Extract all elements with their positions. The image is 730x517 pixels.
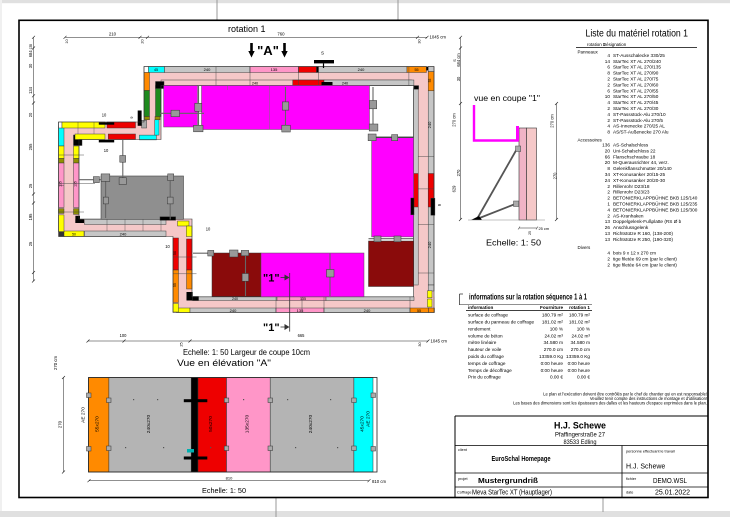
svg-text:Uni-Schalschloss 22: Uni-Schalschloss 22 [613,148,656,153]
svg-text:30: 30 [418,342,422,346]
svg-text:136: 136 [602,143,610,148]
svg-text:"A": "A" [257,43,279,58]
svg-text:BETONIERKLAPPBÜHNE BKB 125/235: BETONIERKLAPPBÜHNE BKB 125/235 [613,201,698,207]
svg-text:195: 195 [28,213,33,221]
svg-text:55x270: 55x270 [95,416,101,432]
svg-text:684 cm: 684 cm [28,43,33,57]
svg-text:tige filetée 64 cm (par le cli: tige filetée 64 cm (par le client) [613,263,677,268]
svg-text:45: 45 [154,68,158,72]
svg-text:AE 270: AE 270 [81,407,87,423]
svg-text:Prix du coffrage: Prix du coffrage [468,375,501,380]
svg-text:55: 55 [173,283,177,287]
svg-text:13: 13 [605,231,611,236]
svg-text:270 cm: 270 cm [550,114,555,128]
svg-text:Gelenkflanschmutter 20/140: Gelenkflanschmutter 20/140 [613,166,672,171]
svg-text:270 cm: 270 cm [53,356,58,371]
svg-text:StarTec XT AL 270/60: StarTec XT AL 270/60 [613,82,659,87]
svg-text:ST-Ausschalecke 330/25: ST-Ausschalecke 330/25 [613,53,665,58]
svg-text:55: 55 [417,309,421,313]
svg-text:date: date [626,491,633,495]
svg-text:25: 25 [528,231,532,235]
svg-text:AS-Innenecke 270/25 AL: AS-Innenecke 270/25 AL [613,124,665,129]
svg-text:2: 2 [607,196,610,201]
svg-text:240: 240 [120,232,127,237]
svg-text:240x270: 240x270 [146,414,152,433]
svg-text:2: 2 [607,77,610,82]
svg-text:rotation 1: rotation 1 [569,305,590,310]
svg-text:13: 13 [605,237,611,242]
svg-text:Liste du matériel rotation 1: Liste du matériel rotation 1 [586,29,689,40]
svg-text:2: 2 [607,257,610,262]
svg-text:AS/ST-Außenecke 270 Alu: AS/ST-Außenecke 270 Alu [613,130,669,135]
svg-text:StarTec XT AL 270/135: StarTec XT AL 270/135 [613,65,661,70]
svg-text:StarTec XT AL 270/240: StarTec XT AL 270/240 [613,59,661,64]
svg-text:25: 25 [180,342,184,346]
svg-text:24.02 m³: 24.02 m³ [545,333,564,338]
svg-text:Rillenrohr D23/18: Rillenrohr D23/18 [613,184,650,189]
svg-text:0.00 €: 0.00 € [577,375,590,380]
svg-text:25.01.2022: 25.01.2022 [655,490,690,497]
svg-text:Accessoires: Accessoires [578,138,603,143]
svg-text:Echelle: 1: 50: Echelle: 1: 50 [486,239,542,248]
svg-text:240: 240 [230,308,237,313]
svg-text:20: 20 [141,39,145,43]
svg-text:0:00 heure: 0:00 heure [541,361,564,366]
svg-text:100: 100 [120,333,128,338]
svg-text:"1": "1" [263,322,280,334]
svg-text:6: 6 [607,65,610,70]
svg-text:240x270: 240x270 [308,414,314,433]
svg-text:270.0 cm: 270.0 cm [544,347,563,352]
svg-text:25: 25 [28,241,33,246]
svg-text:10: 10 [165,244,170,249]
svg-text:34.580 m: 34.580 m [570,340,590,345]
svg-text:34: 34 [605,172,611,177]
svg-text:tige filetée 69 cm (par le cli: tige filetée 69 cm (par le client) [613,257,677,262]
svg-text:0:00 heure: 0:00 heure [541,368,564,373]
svg-text:66: 66 [605,154,611,159]
svg-text:270: 270 [58,420,63,428]
svg-text:50x270: 50x270 [208,416,214,432]
svg-text:S: S [452,59,457,62]
svg-text:mètre linéaire: mètre linéaire [468,340,497,345]
svg-text:135: 135 [73,181,77,187]
svg-text:240: 240 [204,67,211,72]
svg-text:134: 134 [28,86,33,94]
svg-text:ST-Passstück-Alu 270/5: ST-Passstück-Alu 270/5 [613,118,663,123]
svg-text:100 %: 100 % [577,326,590,331]
svg-text:Temps de décoffrage: Temps de décoffrage [468,368,512,373]
svg-text:10: 10 [206,227,211,232]
svg-text:Pfaffingerstraße 27: Pfaffingerstraße 27 [555,432,605,439]
svg-text:10: 10 [104,148,109,153]
svg-text:4: 4 [607,112,610,117]
svg-text:240: 240 [358,67,365,72]
svg-text:26: 26 [605,225,611,230]
svg-text:2: 2 [607,106,610,111]
svg-text:rendement: rendement [468,326,491,331]
svg-text:AS-Kranhaken: AS-Kranhaken [613,213,644,218]
svg-text:13: 13 [605,219,611,224]
svg-text:Anschlussgelenk: Anschlussgelenk [613,225,649,230]
svg-text:8: 8 [607,166,610,171]
svg-text:180.79 m²: 180.79 m² [569,313,591,318]
svg-text:24.02 m³: 24.02 m³ [572,333,591,338]
svg-text:181.02 m²: 181.02 m² [542,320,564,325]
svg-text:20: 20 [28,112,33,117]
svg-text:13359.0 Kg: 13359.0 Kg [566,354,590,359]
svg-text:240: 240 [252,82,258,86]
svg-text:2: 2 [607,184,610,189]
svg-text:EuroSchal Homepage: EuroSchal Homepage [492,456,551,463]
svg-text:1045 cm: 1045 cm [430,35,447,40]
svg-text:135x270: 135x270 [244,414,250,433]
svg-text:0:00 heure: 0:00 heure [568,368,591,373]
svg-text:2: 2 [607,190,610,195]
svg-text:vue en coupe "1": vue en coupe "1" [474,93,540,103]
svg-text:Divers: Divers [578,245,592,250]
svg-text:20: 20 [605,148,611,153]
svg-text:1: 1 [607,202,610,207]
svg-text:Les bases des dimensions sont: Les bases des dimensions sont les épaiss… [513,401,707,406]
svg-text:2: 2 [607,263,610,268]
svg-text:AS-Schalschloss: AS-Schalschloss [613,143,649,148]
svg-text:Echelle: 1: 50: Echelle: 1: 50 [202,486,246,495]
svg-text:StarTec XT AL 270/30: StarTec XT AL 270/30 [613,106,659,111]
svg-text:20: 20 [605,160,611,165]
svg-text:"1": "1" [263,273,280,285]
svg-text:information: information [468,305,493,310]
svg-text:informations sur la rotation: informations sur la rotation séquence 1 … [469,293,587,302]
svg-text:XT-Konusanker 20/15-25: XT-Konusanker 20/15-25 [613,172,666,177]
svg-text:0.00 €: 0.00 € [550,375,563,380]
svg-text:50: 50 [72,233,76,237]
svg-text:629: 629 [452,185,457,193]
svg-text:181.02 m²: 181.02 m² [569,320,591,325]
svg-text:255: 255 [28,143,33,151]
svg-text:45x270: 45x270 [360,416,366,432]
svg-text:2: 2 [607,118,610,123]
svg-text:H.J. Schewe: H.J. Schewe [554,421,606,432]
svg-text:8: 8 [607,130,610,135]
svg-text:25: 25 [28,183,33,188]
svg-text:4: 4 [607,53,610,58]
svg-text:Meva StarTec XT (Hauptlager): Meva StarTec XT (Hauptlager) [472,490,552,497]
svg-text:Richtstütze R 160, (138-200): Richtstütze R 160, (138-200) [613,231,673,236]
svg-text:projet: projet [458,477,468,481]
svg-text:hauteur de voile: hauteur de voile [468,347,502,352]
svg-text:100 %: 100 % [550,326,563,331]
svg-text:Mustergrundriß: Mustergrundriß [478,478,539,485]
svg-text:810: 810 [226,475,233,480]
svg-text:13359.0 Kg: 13359.0 Kg [539,354,563,359]
svg-text:135: 135 [297,308,304,313]
svg-text:2: 2 [607,213,610,218]
svg-text:0:00 heure: 0:00 heure [568,361,591,366]
svg-text:4: 4 [607,207,610,212]
svg-text:fichier: fichier [626,477,637,481]
svg-text:2: 2 [607,82,610,87]
svg-text:S: S [321,51,324,56]
svg-text:Echelle: 1: 50 Largeur de co: Echelle: 1: 50 Largeur de coupe 10cm [183,348,310,357]
svg-text:StarTec XT AL 270/45: StarTec XT AL 270/45 [613,100,659,105]
svg-text:810 cm: 810 cm [372,479,387,484]
svg-text:83533 Edling: 83533 Edling [564,439,597,446]
svg-text:55: 55 [414,68,418,72]
svg-text:Désignation: Désignation [603,42,627,47]
svg-text:Flanschschraube 18: Flanschschraube 18 [613,154,656,159]
svg-text:StarTec XT AL 270/50: StarTec XT AL 270/50 [613,94,659,99]
svg-text:H.J. Schewe: H.J. Schewe [626,464,665,471]
svg-text:8: 8 [607,71,610,76]
svg-text:270 cm: 270 cm [452,113,457,127]
svg-text:665: 665 [298,333,306,338]
svg-text:135: 135 [58,181,62,187]
svg-text:ST-Passstück-Alu 270/10: ST-Passstück-Alu 270/10 [613,112,666,117]
svg-text:XT-Konusanker 20/20-30: XT-Konusanker 20/20-30 [613,178,666,183]
svg-text:55: 55 [428,79,432,83]
svg-text:30: 30 [28,63,33,68]
svg-text:240: 240 [342,82,348,86]
svg-text:180.79 m²: 180.79 m² [542,313,564,318]
svg-text:Fourniture: Fourniture [540,305,563,310]
svg-text:14: 14 [605,59,611,64]
svg-text:bois 9 x 12 x 270 cm: bois 9 x 12 x 270 cm [613,251,656,256]
svg-text:temps de coffrage: temps de coffrage [468,361,506,366]
svg-text:240: 240 [427,241,432,248]
svg-text:Vue en élévation "A": Vue en élévation "A" [177,358,271,368]
svg-text:4: 4 [607,124,610,129]
svg-text:Rillenrohr D23/23: Rillenrohr D23/23 [613,190,650,195]
svg-text:240: 240 [232,297,238,301]
svg-text:Coffrage: Coffrage [457,491,472,495]
svg-text:DEMO.WSL: DEMO.WSL [653,478,687,485]
svg-text:StarTec XT AL 270/75: StarTec XT AL 270/75 [613,77,659,82]
svg-text:rotation 1: rotation 1 [228,24,266,34]
svg-text:25 cm: 25 cm [539,226,550,231]
svg-text:surface de coffrage: surface de coffrage [468,313,508,318]
svg-text:volume de béton: volume de béton [468,333,503,338]
svg-text:personne effectuant le travail: personne effectuant le travail [626,450,675,454]
svg-text:34.580 m: 34.580 m [543,340,563,345]
svg-text:30: 30 [456,76,461,81]
svg-text:135: 135 [271,67,278,72]
svg-text:50: 50 [173,251,177,255]
svg-text:Doppelgelenk-Fußplatte (RS Ø b: Doppelgelenk-Fußplatte (RS Ø b [613,219,682,224]
svg-text:10: 10 [65,39,69,43]
svg-text:10: 10 [605,94,611,99]
svg-text:poids du coffrage: poids du coffrage [468,354,504,359]
svg-text:270: 270 [553,172,558,180]
svg-text:6: 6 [607,88,610,93]
svg-text:AE 270: AE 270 [366,411,372,427]
svg-text:135: 135 [300,297,306,301]
svg-text:10: 10 [102,113,107,118]
svg-text:4: 4 [607,251,610,256]
svg-text:760: 760 [277,31,285,36]
svg-text:M-Querausrichter 44, verz.: M-Querausrichter 44, verz. [613,160,669,165]
svg-text:270.0 cm: 270.0 cm [571,347,590,352]
svg-text:1045 cm: 1045 cm [431,338,448,343]
svg-text:240: 240 [427,121,432,128]
svg-text:StarTec XT AL 270/55: StarTec XT AL 270/55 [613,88,659,93]
svg-text:240: 240 [364,308,371,313]
svg-text:client: client [458,448,468,452]
svg-text:24: 24 [605,178,611,183]
svg-text:210: 210 [109,31,117,36]
svg-text:StarTec XT AL 270/90: StarTec XT AL 270/90 [613,71,659,76]
svg-text:30: 30 [418,39,422,43]
svg-text:BETONIERKLAPPBÜHNE BKB 125/140: BETONIERKLAPPBÜHNE BKB 125/140 [613,195,698,201]
svg-text:270: 270 [456,169,461,177]
svg-text:Richtstütze R 250, (190-320): Richtstütze R 250, (190-320) [613,237,673,242]
svg-text:9: 9 [130,116,134,118]
svg-text:surface du panneau de coffrage: surface du panneau de coffrage [468,320,535,325]
svg-text:Panneaux: Panneaux [578,50,599,55]
svg-text:4: 4 [607,100,610,105]
svg-text:BETONIERKLAPPBÜHNE BKB 125/300: BETONIERKLAPPBÜHNE BKB 125/300 [613,206,698,212]
